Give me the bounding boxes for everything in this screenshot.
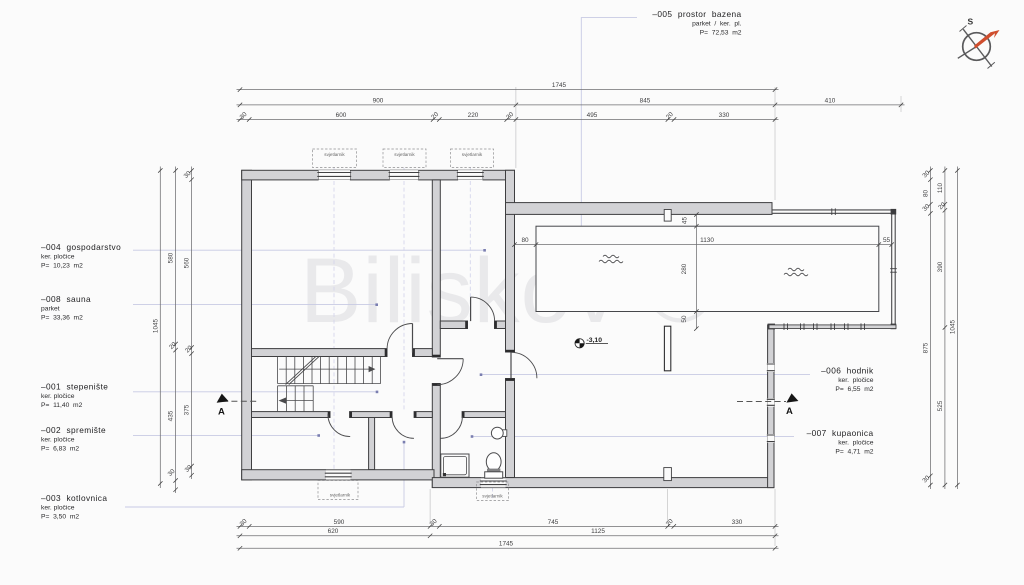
svg-text:280: 280 [681, 263, 688, 274]
svg-text:svjetlarnik: svjetlarnik [330, 493, 351, 498]
svg-text:110: 110 [937, 182, 944, 193]
svg-text:–005 prostor bazena: –005 prostor bazena [652, 9, 741, 19]
svg-text:80: 80 [922, 190, 929, 198]
svg-text:P= 6,55 m2: P= 6,55 m2 [835, 386, 873, 393]
svg-text:svjetlarnik: svjetlarnik [394, 152, 415, 157]
svg-text:875: 875 [922, 342, 929, 353]
svg-text:1045: 1045 [949, 319, 956, 334]
svg-text:parket: parket [41, 306, 60, 313]
svg-text:P= 6,83 m2: P= 6,83 m2 [41, 446, 79, 453]
svg-text:–001 stepenište: –001 stepenište [41, 382, 108, 392]
svg-text:745: 745 [548, 519, 559, 526]
svg-text:P= 72,53 m2: P= 72,53 m2 [700, 30, 742, 37]
svg-text:435: 435 [168, 410, 175, 421]
svg-text:parket / ker. pl.: parket / ker. pl. [692, 21, 742, 28]
svg-text:–002 spremište: –002 spremište [41, 425, 106, 435]
svg-text:ker. pločice: ker. pločice [41, 437, 75, 444]
svg-text:–006 hodnik: –006 hodnik [821, 366, 874, 376]
svg-text:1130: 1130 [700, 237, 714, 244]
svg-text:590: 590 [334, 519, 345, 526]
svg-text:ker. pločice: ker. pločice [838, 440, 874, 447]
svg-text:P= 3,50 m2: P= 3,50 m2 [41, 514, 79, 521]
svg-text:620: 620 [328, 528, 339, 535]
svg-text:–008 sauna: –008 sauna [41, 294, 91, 304]
svg-text:55: 55 [883, 237, 891, 244]
svg-text:1745: 1745 [499, 541, 514, 548]
svg-text:–003 kotlovnica: –003 kotlovnica [41, 493, 107, 503]
svg-text:S: S [968, 17, 974, 27]
svg-text:–007 kupaonica: –007 kupaonica [807, 428, 874, 438]
svg-text:ker. pločice: ker. pločice [838, 377, 874, 384]
svg-text:600: 600 [336, 112, 347, 119]
svg-text:220: 220 [468, 112, 479, 119]
svg-text:80: 80 [521, 237, 529, 244]
svg-text:390: 390 [937, 261, 944, 272]
svg-text:P= 4,71 m2: P= 4,71 m2 [835, 449, 873, 456]
svg-text:845: 845 [640, 97, 651, 104]
svg-text:1125: 1125 [591, 528, 605, 535]
svg-text:svjetlarnik: svjetlarnik [324, 152, 345, 157]
svg-text:580: 580 [168, 252, 175, 263]
svg-text:375: 375 [184, 404, 191, 415]
svg-text:svjetlarnik: svjetlarnik [462, 152, 483, 157]
svg-text:P= 11,40 m2: P= 11,40 m2 [41, 402, 83, 409]
svg-text:-3,10: -3,10 [587, 337, 603, 344]
svg-text:410: 410 [825, 97, 836, 104]
svg-text:P= 33,36 m2: P= 33,36 m2 [41, 315, 83, 322]
svg-text:330: 330 [732, 519, 743, 526]
svg-text:svjetlarnik: svjetlarnik [482, 494, 503, 499]
svg-text:ker. pločice: ker. pločice [41, 254, 75, 261]
svg-text:1045: 1045 [152, 318, 159, 333]
svg-text:A: A [786, 406, 793, 417]
svg-text:ker. pločice: ker. pločice [41, 393, 75, 400]
svg-text:–004 gospodarstvo: –004 gospodarstvo [41, 242, 121, 252]
svg-text:ker. pločice: ker. pločice [41, 505, 75, 512]
svg-text:560: 560 [184, 257, 191, 268]
svg-text:525: 525 [937, 400, 944, 411]
svg-text:45: 45 [682, 217, 689, 225]
svg-text:330: 330 [719, 112, 730, 119]
svg-text:900: 900 [373, 97, 384, 104]
svg-text:50: 50 [681, 315, 688, 323]
svg-text:1745: 1745 [552, 82, 567, 89]
svg-text:P= 10,23 m2: P= 10,23 m2 [41, 263, 83, 270]
svg-text:495: 495 [587, 112, 598, 119]
svg-text:A: A [218, 407, 225, 418]
